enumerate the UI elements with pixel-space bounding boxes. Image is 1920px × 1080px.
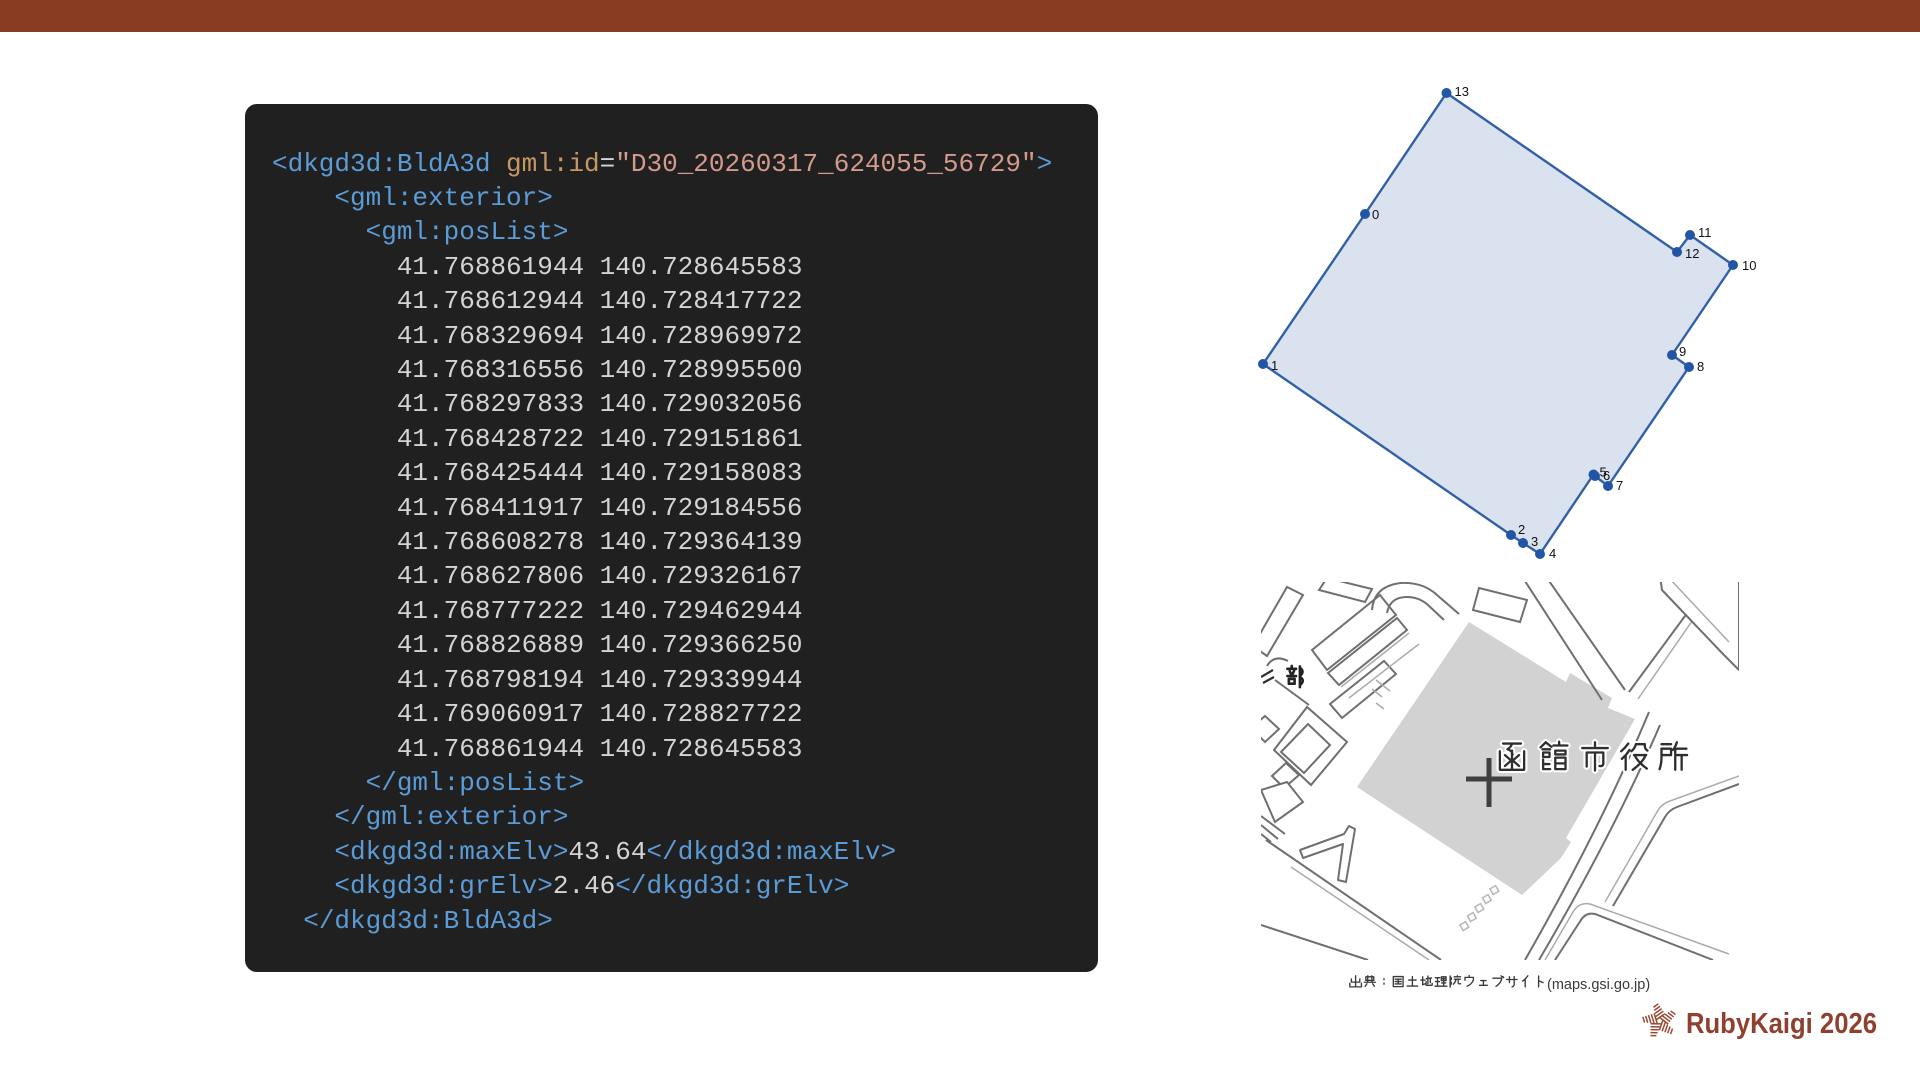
svg-text:3: 3 bbox=[1531, 534, 1538, 549]
svg-text:9: 9 bbox=[1679, 344, 1686, 359]
svg-text:6: 6 bbox=[1603, 468, 1610, 483]
svg-text:1: 1 bbox=[1271, 358, 1278, 373]
svg-text:2: 2 bbox=[1518, 522, 1525, 537]
svg-text:(maps.gsi.go.jp): (maps.gsi.go.jp) bbox=[1547, 977, 1650, 993]
svg-text:8: 8 bbox=[1697, 359, 1704, 374]
svg-text:13: 13 bbox=[1455, 84, 1469, 99]
svg-text:11: 11 bbox=[1698, 225, 1712, 240]
svg-text:10: 10 bbox=[1742, 258, 1756, 273]
svg-text:4: 4 bbox=[1549, 546, 1556, 561]
svg-text:7: 7 bbox=[1616, 478, 1623, 493]
svg-text:0: 0 bbox=[1372, 207, 1379, 222]
svg-text:12: 12 bbox=[1685, 246, 1699, 261]
svg-text:RubyKaigi 2026: RubyKaigi 2026 bbox=[1686, 1008, 1877, 1040]
